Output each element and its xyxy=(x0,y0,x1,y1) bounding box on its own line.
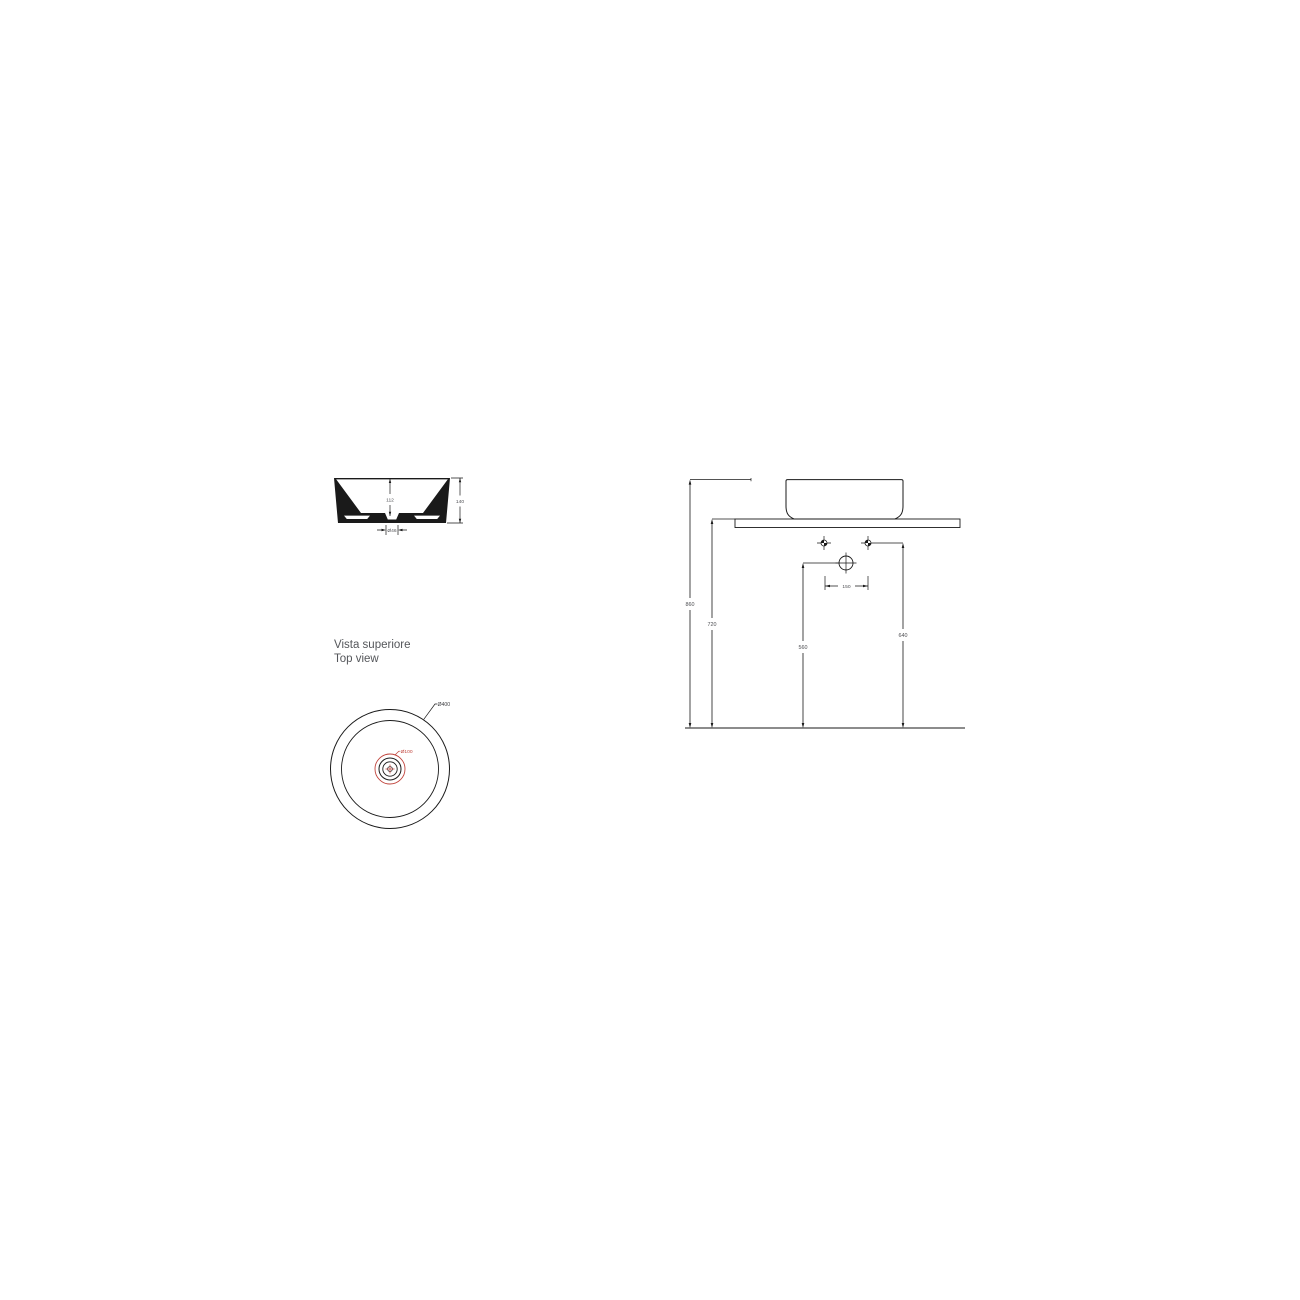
tap-spacing-dimension: 150 xyxy=(825,576,868,590)
view-title-italian: Vista superiore xyxy=(334,639,411,653)
supply-height-dimension: 640 xyxy=(899,543,908,728)
waste-outlet-symbol xyxy=(836,553,857,574)
drain-height-dimension: 560 xyxy=(799,563,808,728)
basin-elevation-outline xyxy=(786,480,903,519)
outer-diameter-leader xyxy=(424,704,437,719)
overall-height-label: 140 xyxy=(456,499,464,505)
outer-diameter-label: Ø400 xyxy=(438,702,451,708)
drain-height-label: 560 xyxy=(799,645,808,651)
height-arrow-down xyxy=(459,519,461,523)
top-view-title: Vista superiore Top view xyxy=(334,639,411,666)
drain-diameter-label: Ø100 xyxy=(401,749,413,755)
basin-top-view: Ø400 Ø100 xyxy=(325,693,465,843)
depth-arrow-down xyxy=(389,512,391,516)
technical-sheet: 112 140 Ø46 Vista superiore Top view xyxy=(0,0,1300,1300)
countertop-slab xyxy=(735,519,960,528)
rim-height-dimension: 860 xyxy=(686,480,695,728)
supply-height-label: 640 xyxy=(899,633,908,639)
inner-depth-label: 112 xyxy=(386,498,394,504)
depth-arrow-up xyxy=(389,479,391,483)
supply-connection-left xyxy=(817,536,831,550)
height-arrow-up xyxy=(459,478,461,482)
drain-arrow-right xyxy=(398,529,403,531)
installation-side-view: 860 720 560 640 150 xyxy=(680,468,980,748)
rim-extension-line xyxy=(690,478,751,481)
supply-connection-right xyxy=(861,536,875,550)
rim-height-label: 860 xyxy=(686,602,695,608)
drain-center-cross xyxy=(386,765,395,774)
drain-arrow-left xyxy=(382,529,387,531)
section-depth-dimension: 112 xyxy=(386,479,394,516)
tap-spacing-label: 150 xyxy=(842,584,850,590)
section-drain-dimension: Ø46 xyxy=(377,525,407,535)
view-title-english: Top view xyxy=(334,653,411,667)
drain-diameter-label: Ø46 xyxy=(387,528,397,534)
section-height-dimension: 140 xyxy=(447,478,464,523)
basin-section-view: 112 140 Ø46 xyxy=(330,468,480,548)
counter-height-label: 720 xyxy=(708,622,717,628)
waste-cross xyxy=(836,553,857,574)
counter-height-dimension: 720 xyxy=(708,519,717,728)
drain-diameter-leader xyxy=(395,751,400,755)
